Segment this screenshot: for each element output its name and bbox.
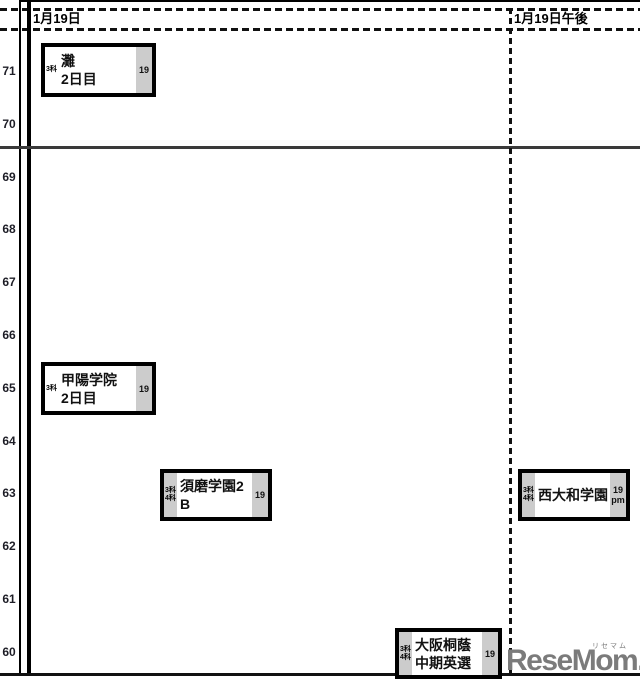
school-exam-round: 中期英選 (415, 654, 482, 672)
resemom-logo-ruby: リセマム (592, 643, 628, 650)
axis-tick-69: 69 (0, 169, 18, 185)
school-name: 西大和学園 (538, 486, 610, 504)
subject-count-label: 3科 4科 (522, 473, 535, 517)
axis-tick-61: 61 (0, 591, 18, 607)
axis-right-line-thick (27, 0, 31, 676)
axis-tick-62: 62 (0, 538, 18, 554)
axis-tick-71: 71 (0, 63, 18, 79)
exam-date-badge: 19 pm (610, 473, 626, 517)
column-header-morning: 1月19日 (33, 11, 81, 27)
exam-schedule-chart: 1月19日 1月19日午後 71 70 69 68 67 66 65 64 63… (0, 0, 640, 683)
axis-tick-63: 63 (0, 485, 18, 501)
exam-date-badge: 19 (136, 47, 152, 93)
school-box-sumagakuen: 3科 4科 須磨学園2 B 19 (160, 469, 272, 521)
school-box-nada: 3科 灘 2日目 19 (41, 43, 156, 97)
header-dashed-line-bottom (0, 28, 640, 31)
subject-count-label: 3科 (45, 366, 58, 411)
axis-tick-66: 66 (0, 327, 18, 343)
school-exam-round: 2日目 (61, 70, 136, 88)
school-exam-round: 2日目 (61, 389, 136, 407)
school-box-koyogakuin: 3科 甲陽学院 2日目 19 (41, 362, 156, 415)
exam-date-badge: 19 (482, 632, 498, 675)
exam-date-badge: 19 (252, 473, 268, 517)
axis-tick-60: 60 (0, 644, 18, 660)
subject-count-label: 3科 (45, 47, 58, 93)
school-name: 灘 (61, 52, 136, 70)
band-divider-line (0, 146, 640, 149)
school-name: 大阪桐蔭 (415, 636, 482, 654)
axis-tick-70: 70 (0, 116, 18, 132)
school-name: 須磨学園2 (180, 477, 252, 495)
subject-count-label: 3科 4科 (399, 632, 412, 675)
axis-tick-65: 65 (0, 380, 18, 396)
school-exam-round: B (180, 495, 252, 513)
school-name: 甲陽学院 (61, 371, 136, 389)
axis-tick-67: 67 (0, 274, 18, 290)
school-box-nishiyamato: 3科 4科 西大和学園 19 pm (518, 469, 630, 521)
column-header-afternoon: 1月19日午後 (514, 11, 588, 27)
axis-tick-68: 68 (0, 221, 18, 237)
resemom-logo: リセマム ReseMom. (506, 642, 638, 680)
exam-date-badge: 19 (136, 366, 152, 411)
school-box-osakatoin: 3科 4科 大阪桐蔭 中期英選 19 (395, 628, 502, 679)
axis-tick-64: 64 (0, 433, 18, 449)
column-divider-dashed-line (509, 8, 512, 676)
subject-count-label: 3科 4科 (164, 473, 177, 517)
top-border-line (19, 0, 640, 2)
axis-right-line-thin (19, 0, 21, 676)
